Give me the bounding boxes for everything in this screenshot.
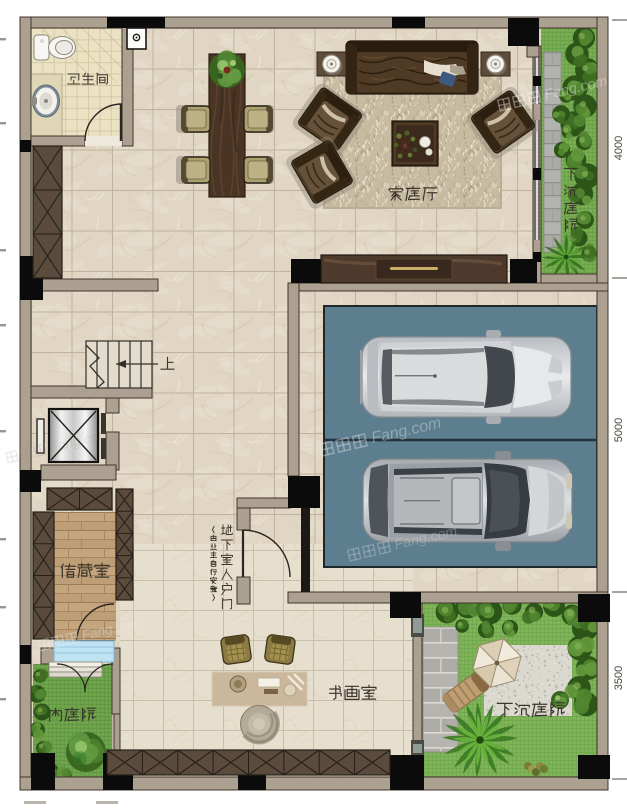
svg-text:3500: 3500 xyxy=(613,666,625,690)
svg-text:4000: 4000 xyxy=(613,136,625,160)
svg-text:5000: 5000 xyxy=(613,418,625,442)
